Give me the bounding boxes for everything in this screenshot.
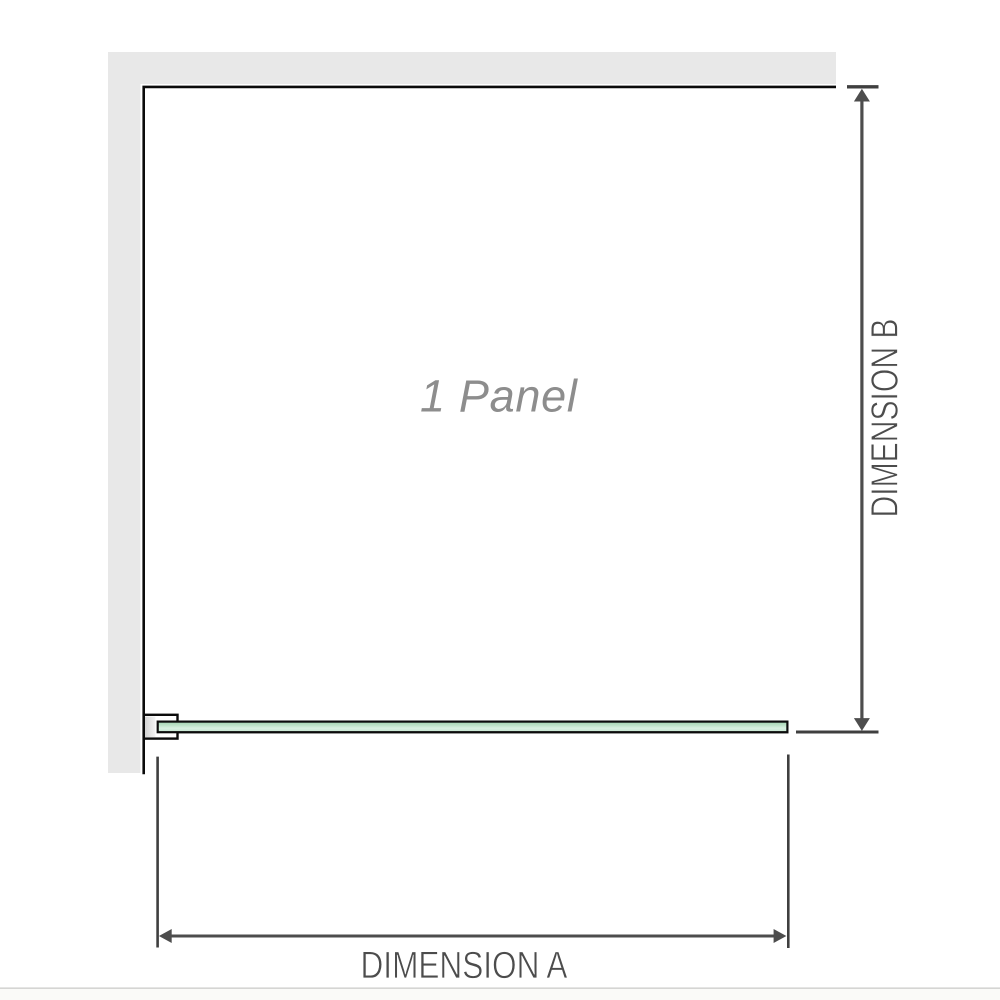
svg-text:DIMENSION B: DIMENSION B bbox=[865, 319, 907, 518]
svg-text:DIMENSION A: DIMENSION A bbox=[361, 945, 569, 987]
svg-text:1 Panel: 1 Panel bbox=[420, 371, 579, 422]
